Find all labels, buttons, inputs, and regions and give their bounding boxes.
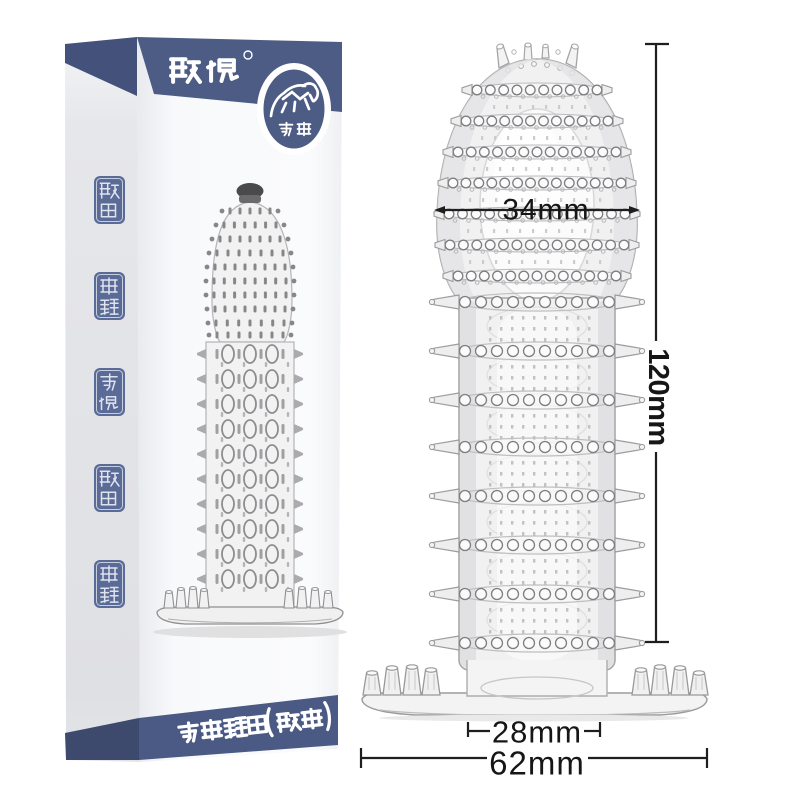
svg-text:120mm: 120mm [642,348,674,445]
svg-text:34mm: 34mm [502,194,589,227]
svg-text:62mm: 62mm [489,745,585,782]
